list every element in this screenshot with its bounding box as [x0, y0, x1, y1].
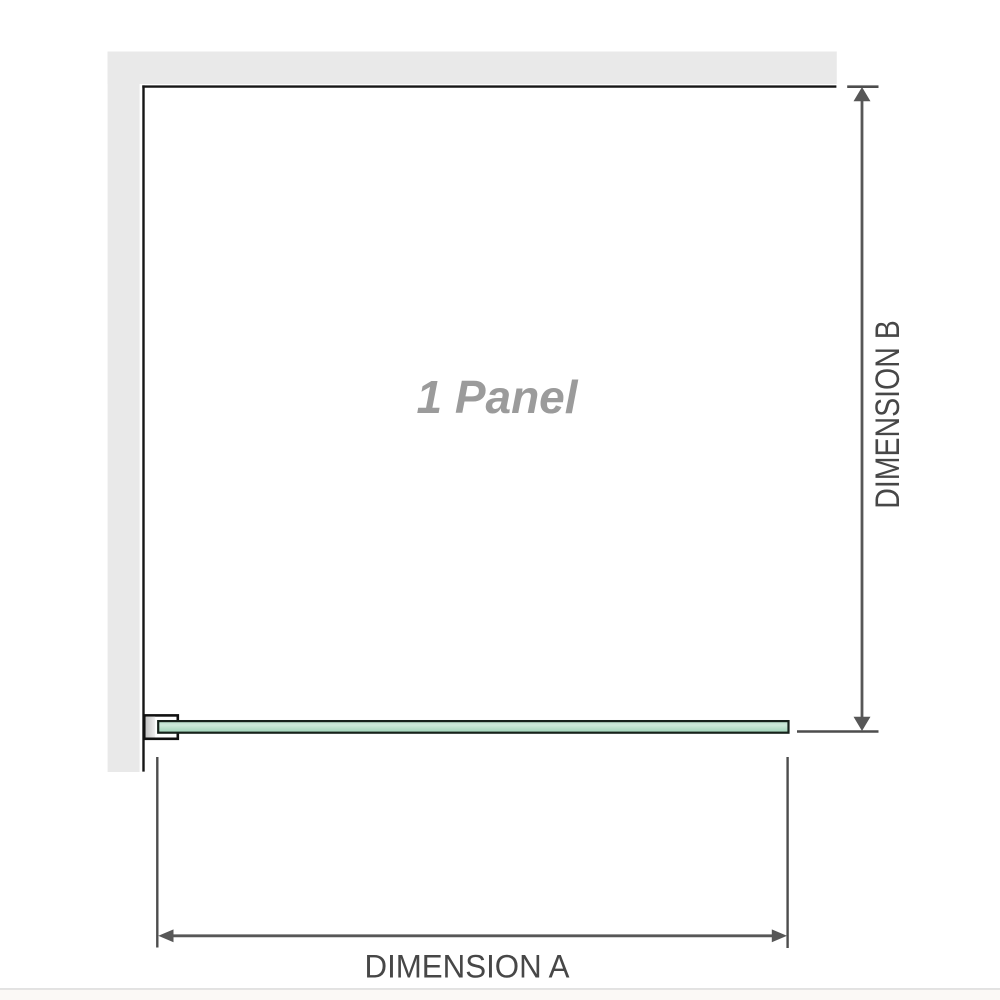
svg-text:1 Panel: 1 Panel [416, 371, 578, 423]
svg-text:DIMENSION A: DIMENSION A [365, 948, 571, 984]
svg-text:DIMENSION B: DIMENSION B [869, 320, 907, 509]
